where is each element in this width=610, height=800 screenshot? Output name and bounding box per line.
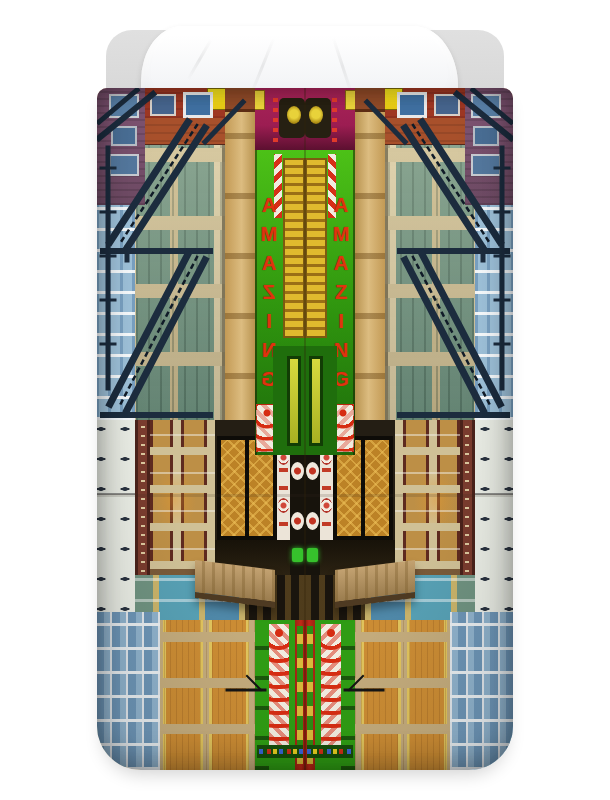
- duvet-cover: AMAZING: [97, 88, 513, 770]
- pillow-crease: [331, 37, 352, 95]
- pillow-crease: [186, 39, 212, 81]
- duvet-shading: [97, 88, 513, 770]
- pillow-crease: [250, 38, 275, 95]
- duvet-product-mockup: AMAZING: [0, 0, 610, 800]
